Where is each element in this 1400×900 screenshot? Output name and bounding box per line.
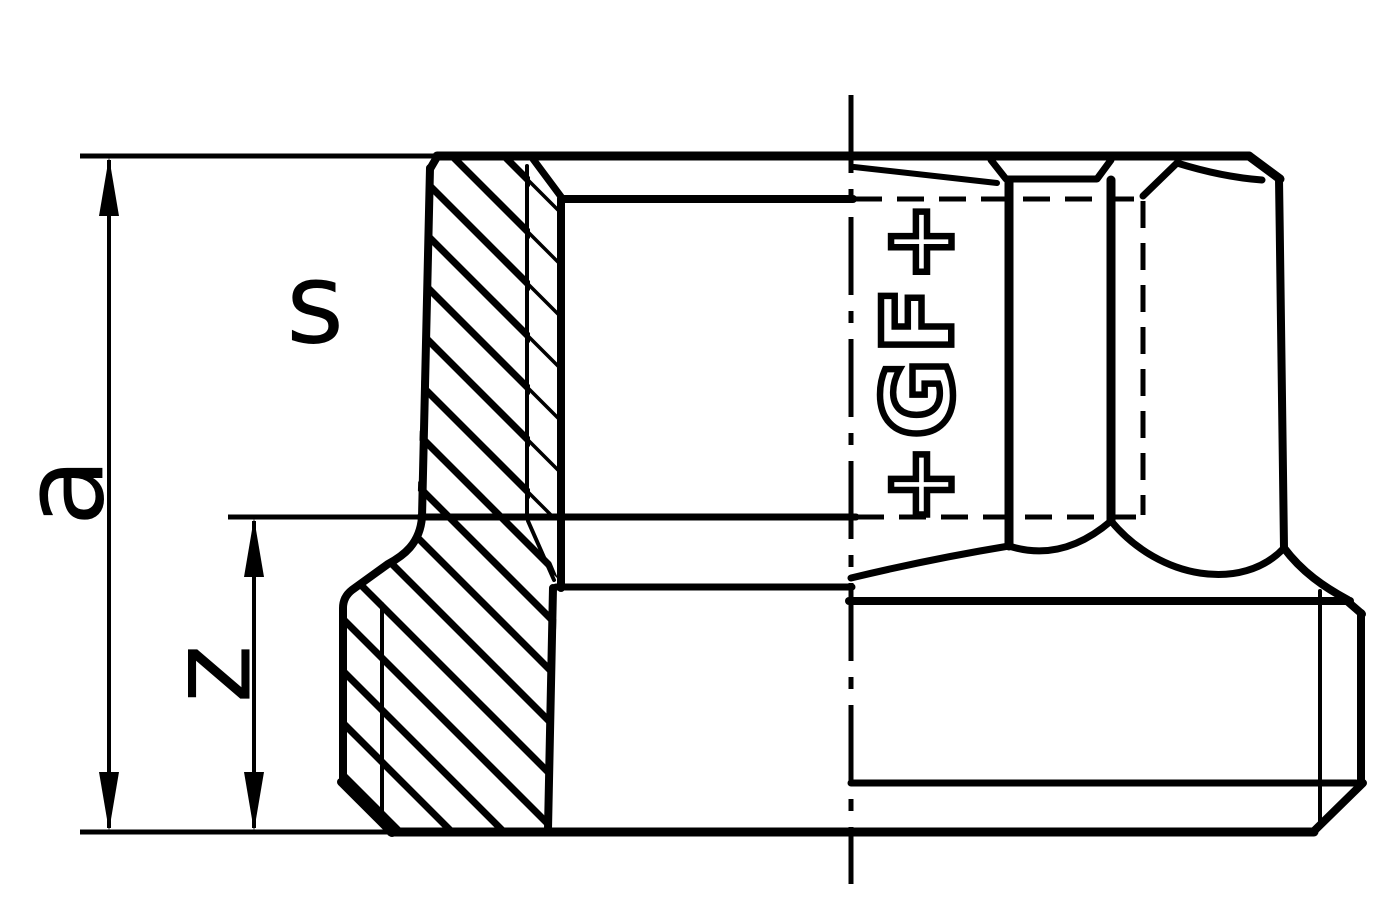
hex-bottom-arc-face3 xyxy=(1111,521,1284,575)
through-bore-edge xyxy=(548,588,553,829)
bottom-left-chamfer xyxy=(341,782,392,833)
arrow-z-down xyxy=(244,772,264,831)
right-neck-silhouette xyxy=(1284,548,1348,600)
hatching-lower-wall xyxy=(300,264,620,900)
hex-chamfer-arc-face1 xyxy=(854,167,997,183)
technical-drawing-canvas: a z s +GF+ xyxy=(0,0,1400,900)
fitting-section-drawing: a z s +GF+ xyxy=(0,0,1400,900)
arrow-z-up xyxy=(244,518,264,577)
gf-logo: +GF+ xyxy=(863,195,975,524)
hex-bottom-arc-face1 xyxy=(851,546,1009,578)
mouth-chamfer-section xyxy=(533,159,562,198)
arrow-a-up xyxy=(99,157,119,216)
hex-right-outer-edge xyxy=(1279,179,1284,548)
hatching-thread-strip xyxy=(360,0,640,708)
top-right-chamfer xyxy=(1249,156,1280,179)
hex-bottom-arc-face2 xyxy=(1009,521,1111,551)
hex-chamfer-arc-face3 xyxy=(1143,163,1262,196)
hatching-upper-wall xyxy=(360,0,640,708)
hex-left-outer-edge xyxy=(422,168,430,517)
label-dimension-a: a xyxy=(0,458,129,527)
arrow-a-down xyxy=(99,772,119,831)
label-dimension-s: s xyxy=(286,239,344,369)
label-dimension-z: z xyxy=(146,645,276,704)
